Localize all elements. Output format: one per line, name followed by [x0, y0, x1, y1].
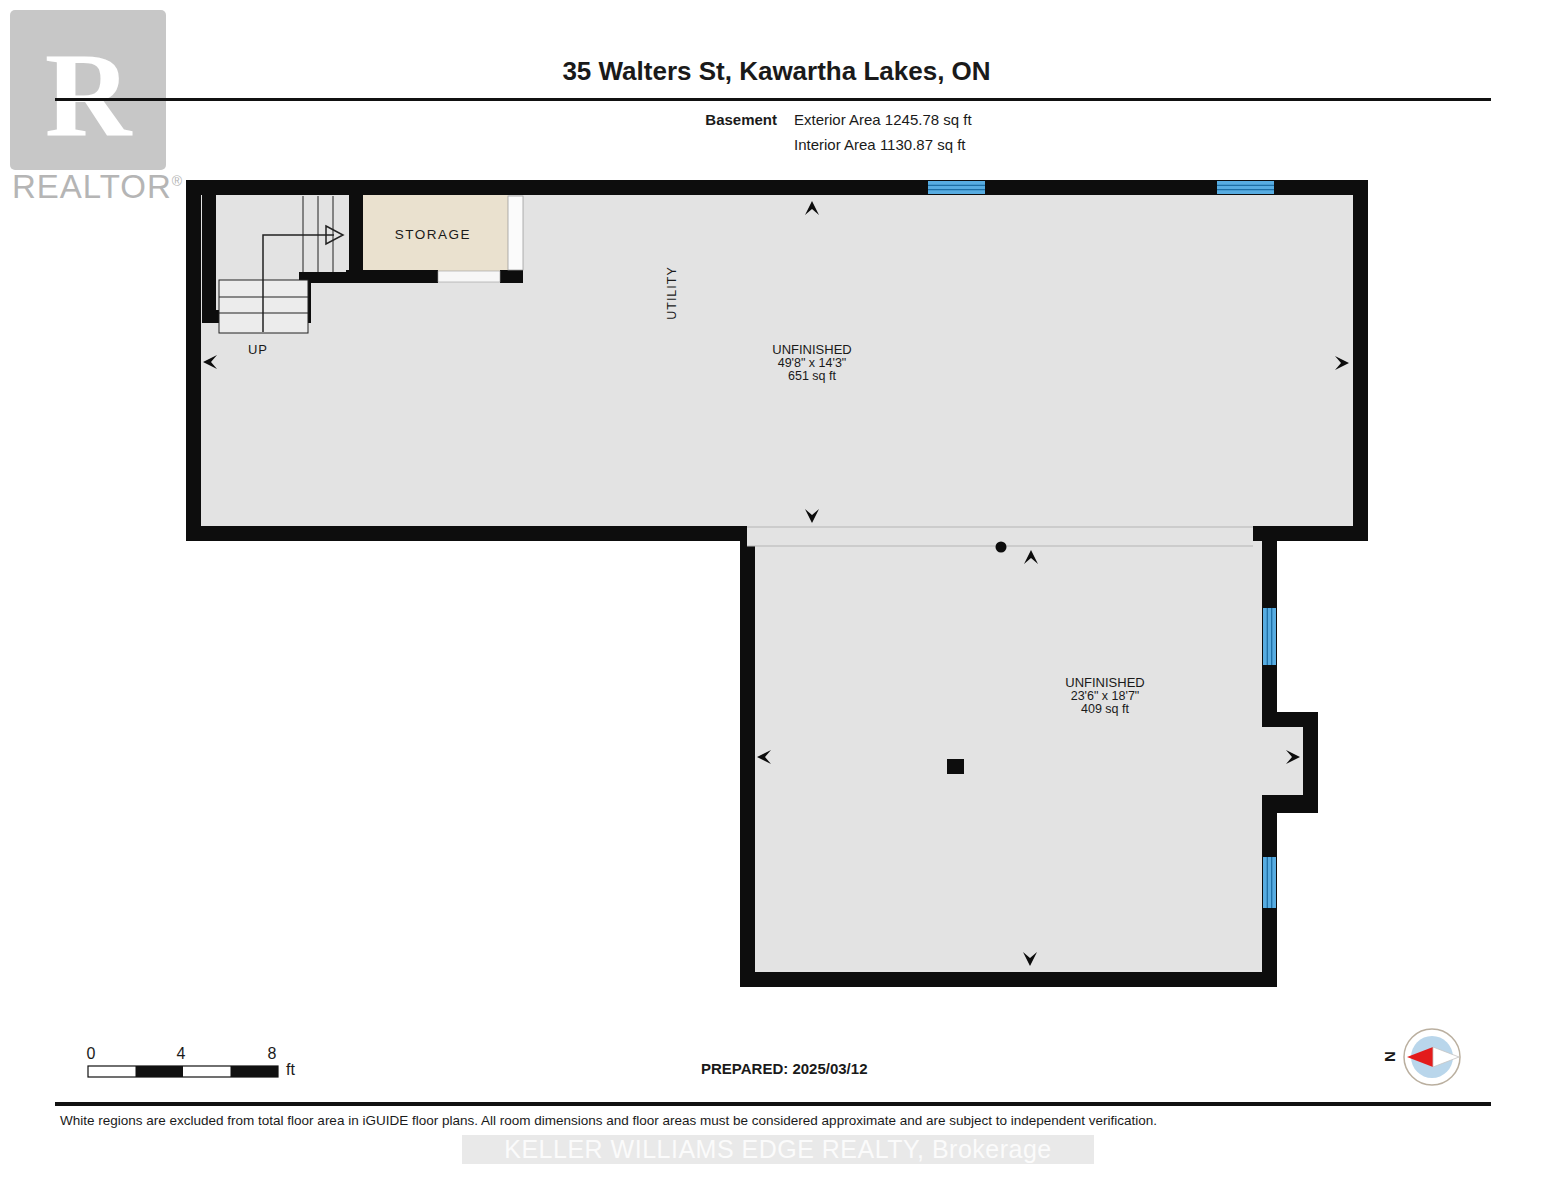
room-area: 409 sq ft: [1005, 703, 1205, 717]
scale-unit-label: ft: [286, 1061, 295, 1079]
exterior-area-label: Exterior Area 1245.78 sq ft: [794, 111, 972, 128]
stairs-up-label: UP: [238, 342, 278, 357]
room-dimensions: 23'6" x 18'7": [1005, 690, 1205, 704]
scale-tick-0: 0: [81, 1045, 101, 1063]
window-right-2: [1263, 857, 1276, 908]
interior-area-label: Interior Area 1130.87 sq ft: [794, 136, 966, 153]
room-name: UNFINISHED: [712, 343, 912, 357]
page-title: 35 Walters St, Kawartha Lakes, ON: [0, 56, 1553, 87]
lower-room: [740, 526, 1318, 987]
stair-wall-west: [202, 195, 216, 322]
window-top-1: [928, 181, 985, 194]
realtor-brand-text: REALTOR: [12, 168, 172, 205]
scale-tick-4: 4: [171, 1045, 191, 1063]
support-post-square: [947, 759, 964, 774]
prepared-date-label: PREPARED: 2025/03/12: [701, 1060, 867, 1077]
lower-room-floor: [755, 541, 1262, 972]
registered-mark: ®: [172, 173, 183, 189]
storage-door-east: [508, 196, 523, 270]
compass-icon: [1404, 1029, 1460, 1085]
utility-room-label: UTILITY: [665, 253, 679, 333]
floor-name-label: Basement: [600, 111, 777, 128]
room-area: 651 sq ft: [712, 370, 912, 384]
footer-divider: [55, 1102, 1491, 1106]
scale-bar-segment: [231, 1066, 279, 1077]
upper-room-label: UNFINISHED 49'8" x 14'3" 651 sq ft: [712, 343, 912, 384]
logo-letter: R: [45, 29, 133, 162]
window-top-2: [1217, 181, 1274, 194]
room-name: UNFINISHED: [1005, 676, 1205, 690]
footer-disclaimer: White regions are excluded from total fl…: [60, 1113, 1157, 1128]
floor-plan-page: R: [0, 0, 1553, 1200]
compass-north-label: N: [1381, 1051, 1398, 1062]
lower-room-label: UNFINISHED 23'6" x 18'7" 409 sq ft: [1005, 676, 1205, 717]
storage-room-label: STORAGE: [358, 227, 508, 242]
support-post-dot: [996, 542, 1007, 553]
storage-door-opening: [438, 271, 500, 282]
header-divider: [55, 98, 1491, 101]
floor-plan-svg: R: [0, 0, 1553, 1200]
scale-bar: [88, 1066, 278, 1077]
storage-wall-south: [346, 270, 438, 283]
scale-bar-segment: [136, 1066, 184, 1077]
brokerage-watermark: KELLER WILLIAMS EDGE REALTY, Brokerage: [462, 1135, 1094, 1164]
lower-room-notch-floor: [1262, 727, 1303, 795]
storage-wall-corner: [500, 270, 523, 283]
window-right-1: [1263, 608, 1276, 665]
realtor-logo-icon: R: [10, 10, 166, 170]
scale-tick-8: 8: [262, 1045, 282, 1063]
realtor-wordmark: REALTOR®: [12, 168, 183, 206]
room-dimensions: 49'8" x 14'3": [712, 357, 912, 371]
